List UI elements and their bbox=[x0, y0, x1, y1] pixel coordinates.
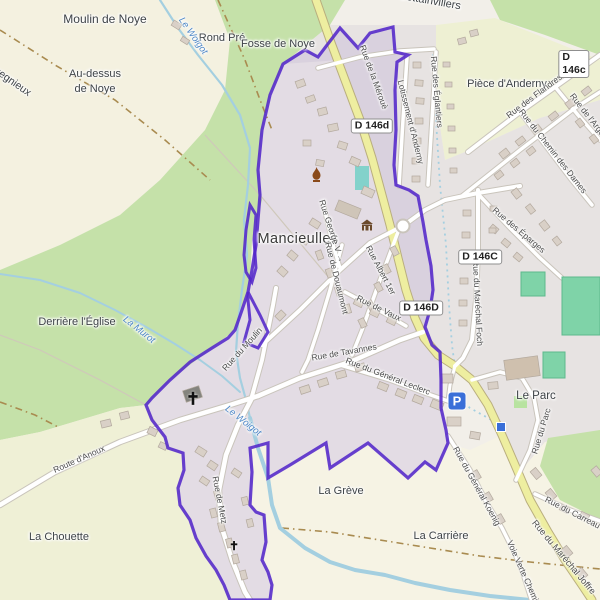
building bbox=[469, 431, 480, 440]
building bbox=[448, 126, 455, 131]
roundabout bbox=[397, 220, 410, 233]
building bbox=[461, 254, 469, 260]
building bbox=[460, 278, 468, 284]
building bbox=[490, 206, 497, 211]
building bbox=[303, 140, 311, 146]
building bbox=[488, 250, 495, 255]
building bbox=[416, 98, 424, 105]
building bbox=[413, 138, 421, 144]
building bbox=[459, 320, 467, 326]
building bbox=[316, 159, 325, 166]
building bbox=[412, 176, 420, 182]
map-canvas[interactable]: Moulin de NoyeRond PréFosse de NoyeAu-de… bbox=[0, 0, 600, 600]
building bbox=[447, 417, 461, 426]
map-base-layer bbox=[0, 0, 600, 600]
building bbox=[441, 374, 453, 383]
building bbox=[449, 148, 456, 153]
sports-pitch bbox=[543, 352, 565, 378]
building bbox=[415, 80, 423, 87]
building bbox=[462, 232, 470, 238]
building bbox=[463, 210, 471, 216]
building bbox=[445, 82, 452, 87]
building bbox=[413, 62, 421, 68]
building bbox=[450, 168, 457, 173]
building bbox=[443, 62, 450, 67]
building bbox=[489, 228, 496, 233]
park-area bbox=[514, 396, 527, 408]
building bbox=[504, 356, 540, 381]
building bbox=[447, 104, 454, 109]
swimming-pool bbox=[355, 166, 369, 190]
building bbox=[412, 158, 420, 164]
sports-pitch bbox=[562, 277, 600, 335]
building bbox=[415, 118, 423, 124]
sports-pitch bbox=[521, 272, 545, 296]
building bbox=[488, 382, 499, 390]
building bbox=[459, 300, 467, 306]
